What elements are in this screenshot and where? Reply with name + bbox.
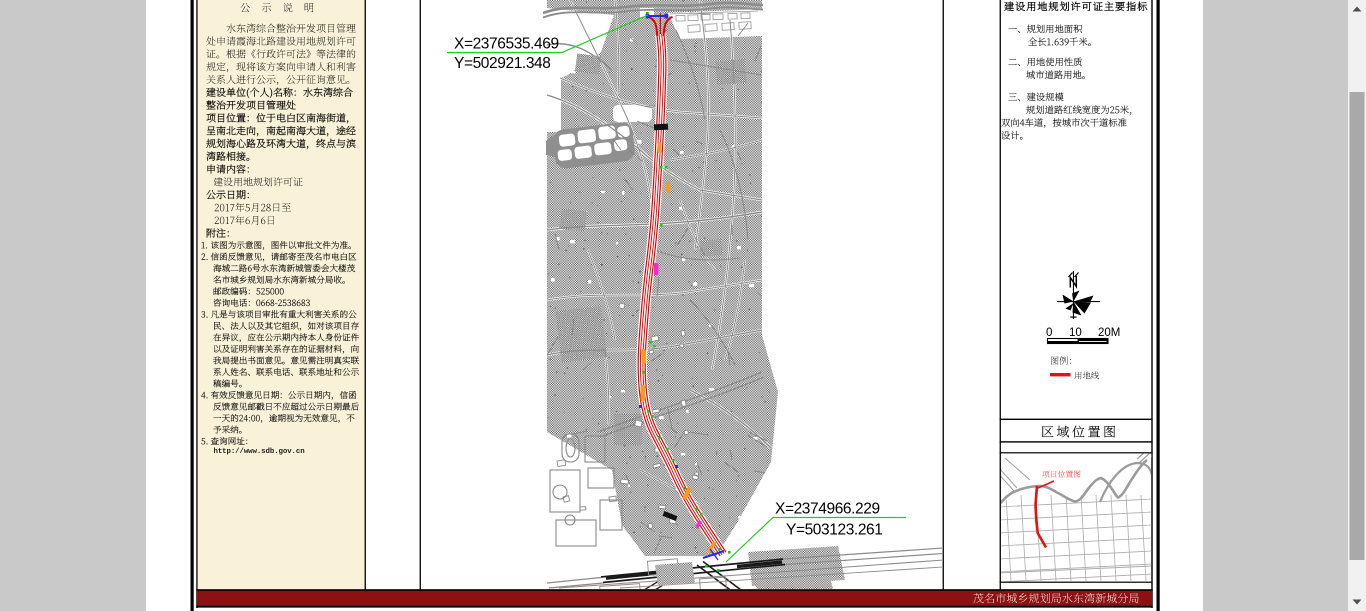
svg-text:Y=503123.261: Y=503123.261 <box>786 522 882 539</box>
svg-text:0: 0 <box>1046 327 1052 339</box>
svg-text:Y=502921.348: Y=502921.348 <box>454 55 550 72</box>
svg-text:http://www.sdb.gov.cn: http://www.sdb.gov.cn <box>214 448 305 456</box>
svg-text:10: 10 <box>1069 327 1082 339</box>
svg-text:X=2374966.229: X=2374966.229 <box>775 501 880 518</box>
svg-text:20M: 20M <box>1098 327 1120 339</box>
svg-text:X=2376535.469: X=2376535.469 <box>454 36 559 53</box>
